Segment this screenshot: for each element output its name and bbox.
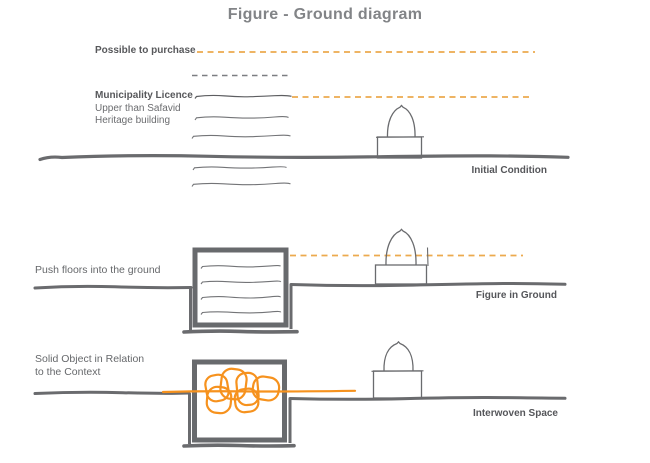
scribble-loop-5 xyxy=(251,375,280,402)
push-floors-annotation: Push floors into the ground xyxy=(35,264,161,276)
ground-line-row1 xyxy=(40,156,568,160)
building-base xyxy=(376,265,427,284)
section-label-interwoven-space: Interwoven Space xyxy=(473,408,558,419)
floor-line-above-1 xyxy=(195,117,289,120)
box-base-strip-row3 xyxy=(184,445,294,446)
building-corner-overshoot xyxy=(428,248,429,267)
box-floor-1 xyxy=(201,266,281,269)
building-base xyxy=(374,371,422,398)
figure-ground-diagram: Figure - Ground diagram Possible to purc… xyxy=(0,0,650,463)
heritage-building-row1 xyxy=(376,106,424,159)
building-base-top-overshoot xyxy=(376,137,424,138)
floor-line-above-2 xyxy=(192,135,291,138)
ground-line-row2-right xyxy=(291,283,565,285)
municipality-sub-label-2: Heritage building xyxy=(95,115,170,126)
municipality-sub-label-1: Upper than Safavid xyxy=(95,103,181,114)
possible-to-purchase-label: Possible to purchase xyxy=(95,45,196,56)
building-dome xyxy=(384,342,413,371)
municipality-licence-label: Municipality Licence xyxy=(95,90,193,101)
box-floor-3 xyxy=(201,296,281,299)
ground-line-row3-right xyxy=(290,397,565,399)
interwoven-scribble xyxy=(163,368,355,414)
building-dome xyxy=(386,229,416,265)
diagram-drawing xyxy=(0,0,650,463)
floor-line-below-1 xyxy=(193,167,287,170)
box-floor-2 xyxy=(201,281,281,284)
row2-figure-in-ground xyxy=(35,229,565,332)
building-base-top-overshoot xyxy=(372,371,424,372)
box-floor-4 xyxy=(201,311,281,314)
page-title: Figure - Ground diagram xyxy=(0,6,650,24)
municipality-licence-line xyxy=(195,95,292,98)
solid-object-annotation-line2: to the Context xyxy=(35,366,100,378)
ground-line-row2-left xyxy=(35,286,191,288)
sunken-box-row2 xyxy=(195,250,286,325)
box-floor-lines xyxy=(201,266,281,315)
solid-object-annotation-line1: Solid Object in Relation xyxy=(35,353,144,365)
building-dome xyxy=(387,106,415,138)
floor-line-below-2 xyxy=(192,183,291,186)
heritage-building-row3 xyxy=(372,342,424,398)
box-base-strip-row2 xyxy=(184,331,297,332)
section-label-initial-condition: Initial Condition xyxy=(471,165,547,176)
section-label-figure-in-ground: Figure in Ground xyxy=(476,290,557,301)
heritage-building-row2 xyxy=(376,229,429,284)
